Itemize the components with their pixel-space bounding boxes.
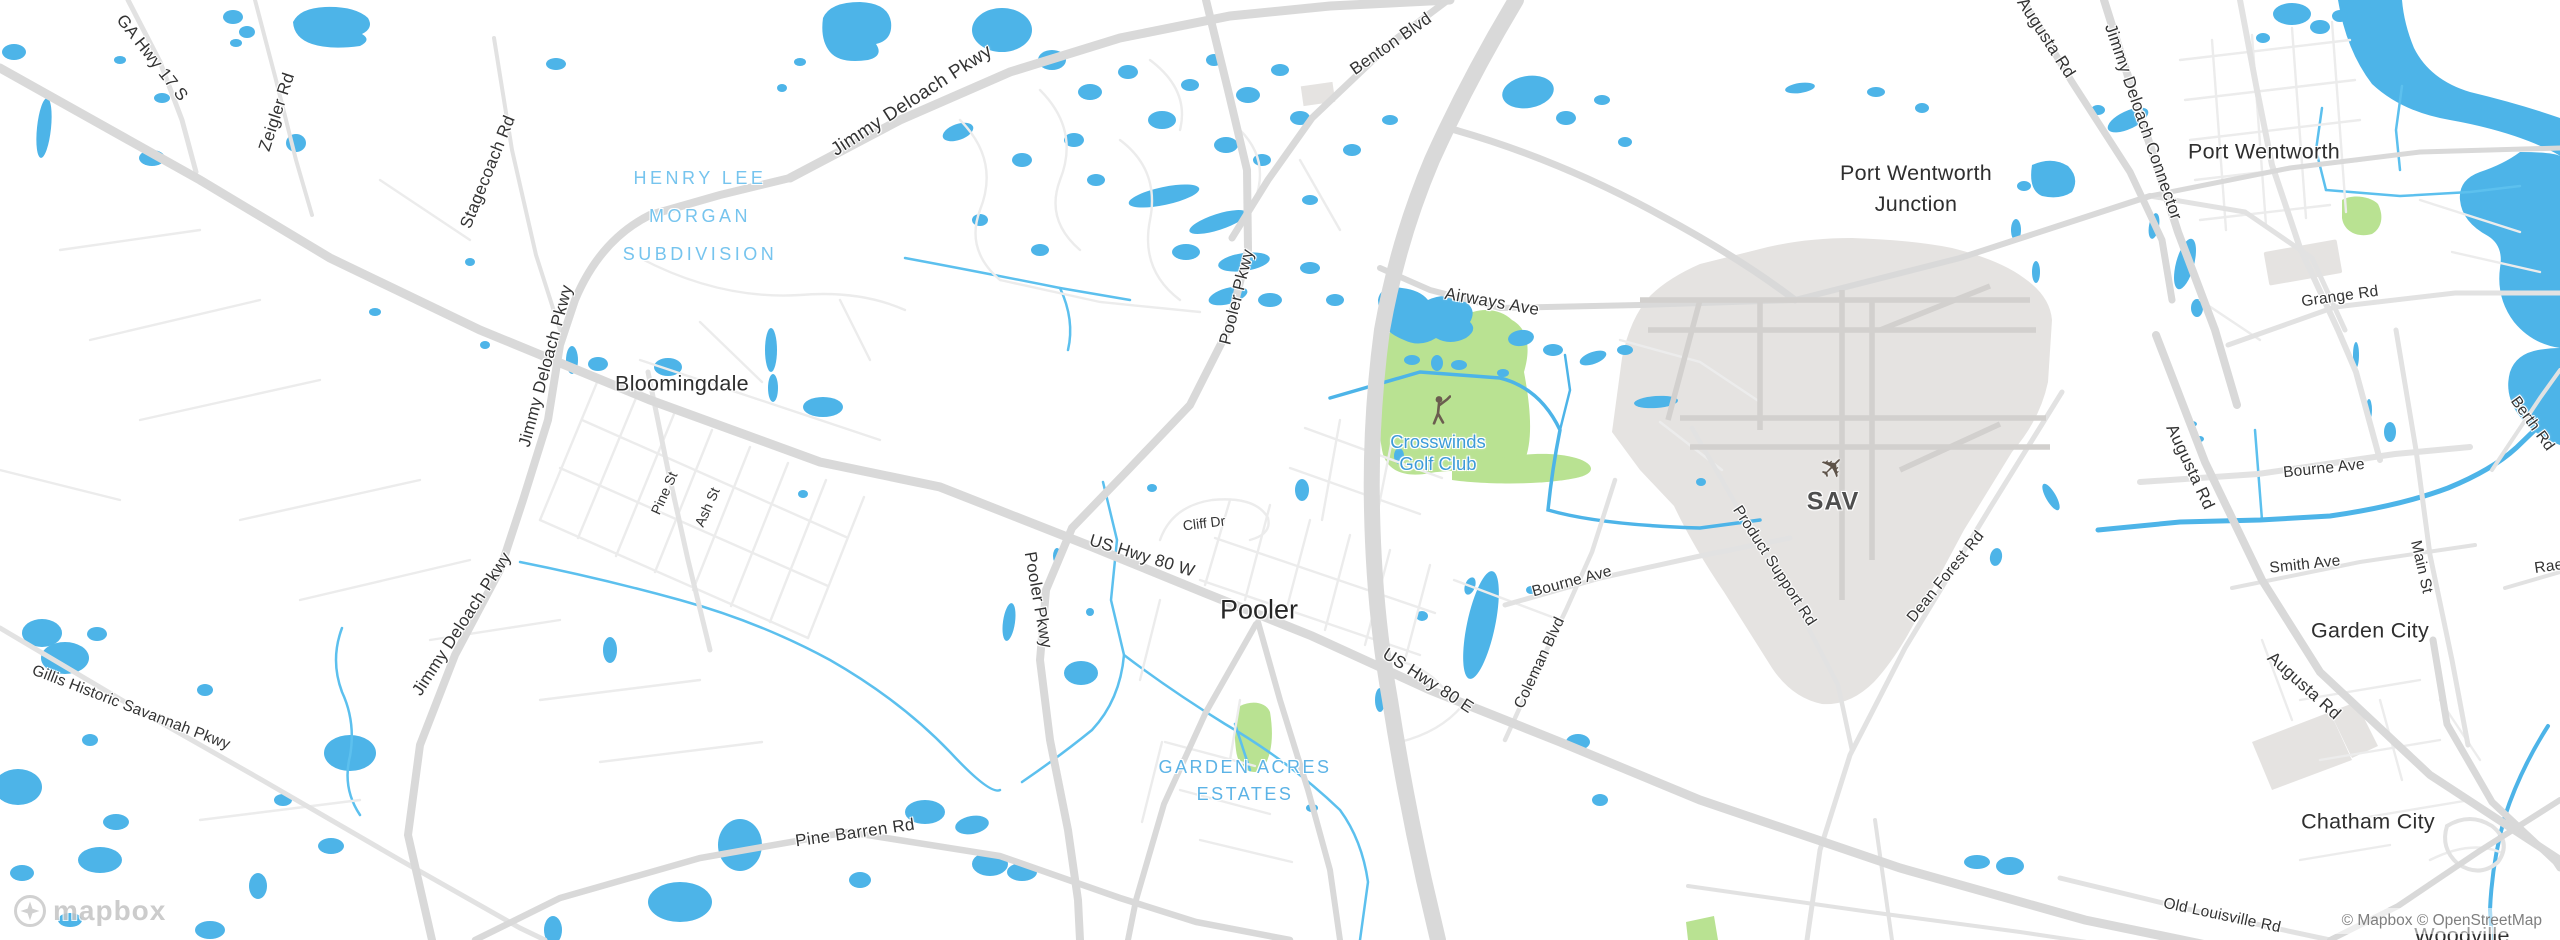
city-label-port-wentworth-junction: Port Wentworth Junction <box>1840 158 1992 220</box>
city-label-line: Port Wentworth <box>1840 158 1992 189</box>
mapbox-logo[interactable]: mapbox <box>13 894 166 928</box>
mapbox-logo-icon <box>13 894 47 928</box>
road-label-rae-partial: Rae <box>2533 556 2560 578</box>
city-label-port-wentworth: Port Wentworth <box>2188 140 2340 165</box>
area-label-line: SUBDIVISION <box>623 235 778 273</box>
poi-label-line: Crosswinds <box>1390 431 1486 453</box>
area-label-garden-acres-estates: GARDEN ACRES ESTATES <box>1158 754 1331 808</box>
map-attribution[interactable]: © Mapbox © OpenStreetMap <box>2330 908 2554 934</box>
city-label-chatham-city: Chatham City <box>2301 810 2435 835</box>
poi-label-crosswinds-golf-club: Crosswinds Golf Club <box>1390 431 1486 475</box>
golfer-icon <box>1425 395 1451 430</box>
city-label-line: Junction <box>1840 189 1992 220</box>
area-label-line: MORGAN <box>623 197 778 235</box>
city-label-bloomingdale: Bloomingdale <box>615 372 749 397</box>
city-label-pooler: Pooler <box>1220 595 1298 626</box>
poi-label-line: Golf Club <box>1390 453 1486 475</box>
mapbox-wordmark: mapbox <box>53 895 166 927</box>
area-label-henry-lee-morgan-subdivision: HENRY LEE MORGAN SUBDIVISION <box>623 159 778 273</box>
area-label-line: GARDEN ACRES <box>1158 754 1331 781</box>
area-label-line: HENRY LEE <box>623 159 778 197</box>
map-canvas[interactable]: GA Hwy 17 S Zeigler Rd Stagecoach Rd Jim… <box>0 0 2560 940</box>
poi-label-sav-airport: SAV <box>1807 488 1860 517</box>
area-label-line: ESTATES <box>1158 781 1331 808</box>
city-label-garden-city: Garden City <box>2311 619 2429 644</box>
